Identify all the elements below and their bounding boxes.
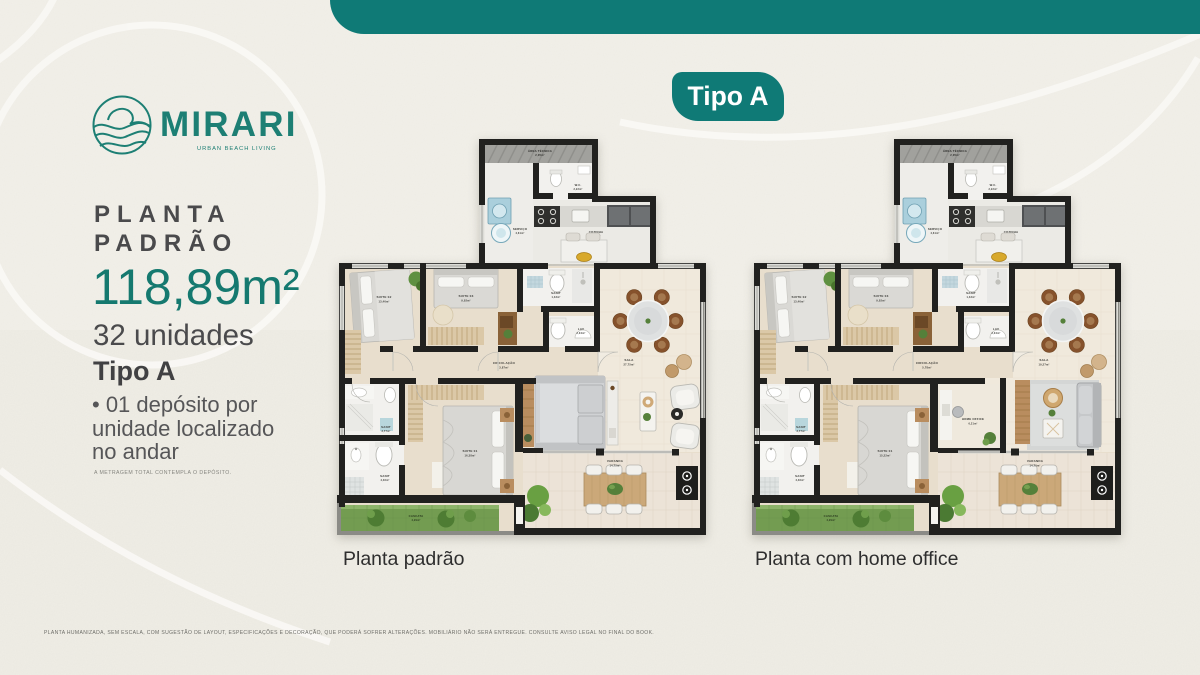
svg-text:3,77m²: 3,77m² xyxy=(381,429,390,433)
svg-text:CASCATA: CASCATA xyxy=(409,514,424,518)
svg-text:4,46m²: 4,46m² xyxy=(380,478,389,482)
svg-text:SANIT: SANIT xyxy=(796,425,806,429)
svg-text:14,75m²: 14,75m² xyxy=(1029,464,1040,468)
svg-text:HOME OFFICE: HOME OFFICE xyxy=(962,417,984,421)
svg-text:SERVIÇO: SERVIÇO xyxy=(928,227,943,231)
svg-text:W.C.: W.C. xyxy=(990,183,997,187)
svg-text:W.C.: W.C. xyxy=(575,183,582,187)
svg-text:SUITE 02: SUITE 02 xyxy=(791,295,806,299)
svg-text:1,43m²: 1,43m² xyxy=(966,295,975,299)
svg-text:3,77m²: 3,77m² xyxy=(796,429,805,433)
svg-text:SUITE 01: SUITE 01 xyxy=(877,449,892,453)
svg-text:2,05m²: 2,05m² xyxy=(535,153,544,157)
svg-text:MIRARI: MIRARI xyxy=(160,105,298,144)
svg-text:SANIT: SANIT xyxy=(966,291,976,295)
svg-text:2,22m²: 2,22m² xyxy=(573,187,582,191)
svg-text:4,29m²: 4,29m² xyxy=(411,518,420,522)
svg-text:19,27m²: 19,27m² xyxy=(1038,363,1049,367)
svg-text:2,04m²: 2,04m² xyxy=(991,331,1000,335)
svg-text:SALA: SALA xyxy=(624,358,634,362)
svg-text:VARANDA: VARANDA xyxy=(1027,459,1044,463)
svg-text:ÁREA TÉCNICA: ÁREA TÉCNICA xyxy=(528,148,553,153)
svg-text:SANIT: SANIT xyxy=(381,425,391,429)
svg-text:VARANDA: VARANDA xyxy=(607,459,624,463)
svg-text:14,75m²: 14,75m² xyxy=(609,464,620,468)
svg-text:4,61m²: 4,61m² xyxy=(515,231,524,235)
svg-text:27,75m²: 27,75m² xyxy=(623,363,634,367)
svg-text:SANIT: SANIT xyxy=(380,474,390,478)
svg-text:ÁREA TÉCNICA: ÁREA TÉCNICA xyxy=(943,148,968,153)
svg-text:LAV: LAV xyxy=(578,327,584,331)
svg-text:16,38m²: 16,38m² xyxy=(464,454,475,458)
svg-text:15,22m²: 15,22m² xyxy=(879,454,890,458)
svg-text:SUITE 02: SUITE 02 xyxy=(376,295,391,299)
svg-text:CASCATA: CASCATA xyxy=(824,514,839,518)
svg-text:CIRCULAÇÃO: CIRCULAÇÃO xyxy=(916,360,939,365)
svg-text:9,02m²: 9,02m² xyxy=(461,299,470,303)
svg-text:6,21m²: 6,21m² xyxy=(968,422,977,426)
svg-text:SUITE 03: SUITE 03 xyxy=(873,294,888,298)
svg-text:3,87m²: 3,87m² xyxy=(499,366,508,370)
svg-text:4,61m²: 4,61m² xyxy=(930,231,939,235)
svg-text:5,78m²: 5,78m² xyxy=(922,366,931,370)
svg-text:LAV: LAV xyxy=(993,327,999,331)
svg-text:SANIT: SANIT xyxy=(795,474,805,478)
svg-text:1,43m²: 1,43m² xyxy=(551,295,560,299)
svg-text:SERVIÇO: SERVIÇO xyxy=(513,227,528,231)
svg-text:SUITE 03: SUITE 03 xyxy=(458,294,473,298)
svg-text:SALA: SALA xyxy=(1039,358,1049,362)
svg-text:13,46m²: 13,46m² xyxy=(378,300,389,304)
svg-text:URBAN BEACH LIVING: URBAN BEACH LIVING xyxy=(197,146,277,152)
svg-text:4,29m²: 4,29m² xyxy=(826,518,835,522)
svg-text:2,05m²: 2,05m² xyxy=(950,153,959,157)
svg-text:4,46m²: 4,46m² xyxy=(795,478,804,482)
svg-text:SUITE 01: SUITE 01 xyxy=(462,449,477,453)
svg-text:CIRCULAÇÃO: CIRCULAÇÃO xyxy=(493,360,516,365)
svg-text:13,46m²: 13,46m² xyxy=(793,300,804,304)
svg-text:SANIT: SANIT xyxy=(551,291,561,295)
svg-text:9,02m²: 9,02m² xyxy=(876,299,885,303)
svg-text:2,22m²: 2,22m² xyxy=(988,187,997,191)
svg-text:2,04m²: 2,04m² xyxy=(576,331,585,335)
